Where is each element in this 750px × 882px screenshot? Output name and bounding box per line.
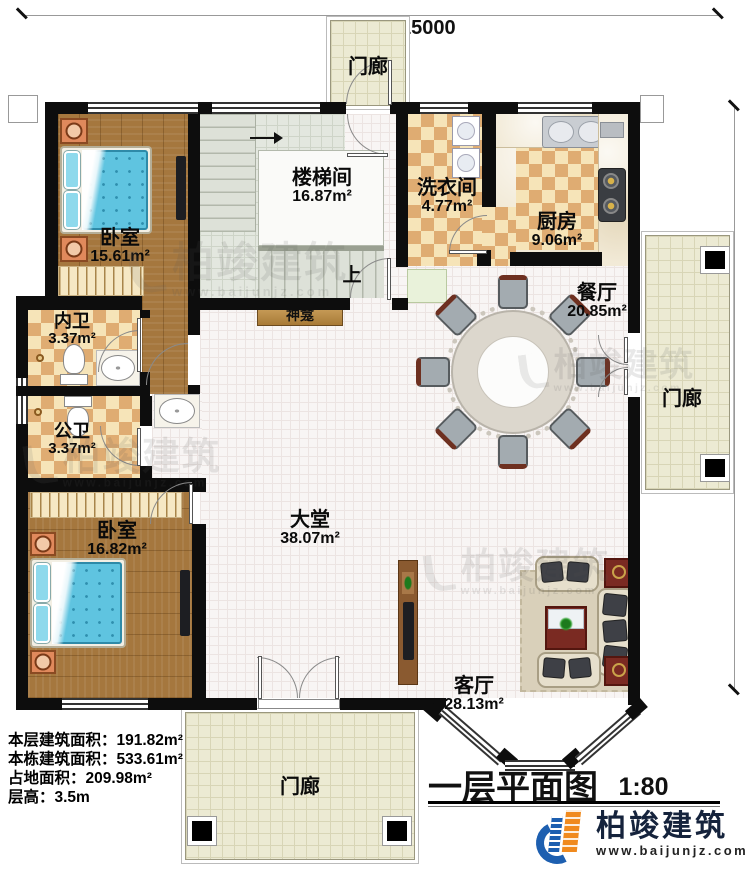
room-label-bath-inner: 内卫 3.37m² bbox=[48, 312, 96, 347]
room-area: 15.61m² bbox=[90, 249, 150, 266]
porch-label-bottom: 门廊 bbox=[280, 770, 320, 799]
wall bbox=[390, 102, 420, 114]
wall bbox=[200, 298, 350, 310]
wall bbox=[16, 296, 142, 310]
door-leaf bbox=[624, 369, 628, 395]
room-area: 3.37m² bbox=[48, 441, 96, 457]
bed-sheet bbox=[82, 150, 122, 230]
room-name: 餐厅 bbox=[567, 283, 627, 304]
dimension-line-right bbox=[734, 108, 735, 692]
toilet-bowl bbox=[63, 344, 85, 374]
dimension-tick bbox=[712, 7, 724, 19]
wall bbox=[188, 114, 200, 310]
bed-pillow bbox=[34, 604, 50, 643]
wall bbox=[192, 524, 206, 698]
door-leaf bbox=[189, 484, 193, 524]
wall bbox=[188, 296, 200, 335]
stairs-upper-flight bbox=[200, 114, 256, 232]
info-line: 占地面积：209.98m² bbox=[8, 769, 183, 788]
nightstand bbox=[60, 118, 88, 144]
brand-logo: 柏竣建筑 www.baijunjz.com bbox=[536, 810, 748, 868]
porch-pillar bbox=[187, 816, 217, 846]
wall bbox=[320, 102, 346, 114]
kitchen-sink-basin bbox=[548, 121, 574, 143]
info-line: 本层建筑面积：191.82m² bbox=[8, 731, 183, 750]
room-area: 9.06m² bbox=[532, 233, 583, 250]
room-label-living: 客厅 28.13m² bbox=[444, 676, 504, 714]
floor-plan: 15000 15600 bbox=[0, 0, 750, 882]
sofa-cushion bbox=[602, 593, 628, 617]
wall bbox=[510, 252, 602, 266]
nightstand bbox=[30, 650, 56, 674]
dining-cabinet bbox=[407, 269, 447, 303]
wall bbox=[16, 386, 140, 396]
toilet-tank bbox=[64, 396, 92, 407]
room-name: 楼梯间 bbox=[292, 168, 352, 189]
title-underline-thin bbox=[428, 806, 720, 807]
window bbox=[16, 378, 28, 424]
wall bbox=[140, 396, 152, 426]
door-leaf bbox=[137, 428, 141, 466]
room-label-laundry: 洗衣间 4.77m² bbox=[417, 178, 477, 216]
wall bbox=[16, 698, 62, 710]
room-name: 客厅 bbox=[444, 676, 504, 697]
sofa-cushion bbox=[540, 561, 564, 583]
dining-table-top bbox=[477, 336, 549, 408]
door-leaf bbox=[347, 153, 388, 157]
bed-pillow bbox=[64, 151, 80, 189]
dining-chair bbox=[498, 275, 528, 309]
side-table-decor bbox=[612, 565, 626, 579]
sofa-cushion bbox=[566, 561, 590, 583]
dimension-width: 15000 bbox=[400, 17, 456, 40]
towel-hook bbox=[34, 408, 42, 416]
room-area: 20.85m² bbox=[567, 304, 627, 321]
wall bbox=[628, 102, 640, 333]
wall bbox=[396, 114, 408, 267]
door-sill bbox=[258, 699, 340, 709]
side-table-decor bbox=[612, 663, 626, 677]
room-name: 卧室 bbox=[90, 228, 150, 249]
plant bbox=[558, 616, 574, 632]
washing-machine bbox=[452, 148, 480, 178]
wall bbox=[16, 424, 28, 710]
room-label-bath-public: 公卫 3.37m² bbox=[48, 422, 96, 457]
window bbox=[62, 698, 148, 710]
stairs-up-label: 上 bbox=[342, 260, 361, 287]
door-leaf bbox=[258, 656, 262, 699]
bed-pillow bbox=[64, 191, 80, 229]
sofa-cushion bbox=[602, 619, 628, 643]
tv-panel bbox=[180, 570, 190, 636]
kitchen-appliance bbox=[600, 122, 624, 138]
room-label-dining: 餐厅 20.85m² bbox=[567, 283, 627, 321]
room-name: 公卫 bbox=[48, 422, 96, 441]
towel-hook bbox=[36, 354, 44, 362]
dimension-line-top bbox=[22, 15, 718, 16]
room-label-kitchen: 厨房 9.06m² bbox=[532, 212, 583, 250]
wall bbox=[140, 466, 152, 478]
window bbox=[420, 102, 468, 114]
sofa-cushion bbox=[568, 657, 592, 679]
window-ledge bbox=[8, 95, 38, 123]
stairs-arrow-head bbox=[274, 132, 283, 144]
door-leaf bbox=[387, 258, 391, 300]
brand-logo-icon bbox=[536, 810, 588, 868]
toilet-tank bbox=[60, 374, 88, 385]
porch-label-top: 门廊 bbox=[348, 50, 388, 79]
wall bbox=[140, 310, 150, 318]
wall bbox=[198, 102, 212, 114]
dining-chair bbox=[416, 357, 450, 387]
wall bbox=[45, 102, 58, 302]
door-leaf bbox=[449, 250, 487, 254]
brand-url: www.baijunjz.com bbox=[596, 843, 748, 858]
sofa-cushion bbox=[542, 657, 566, 679]
brand-name: 柏竣建筑 bbox=[596, 810, 748, 843]
room-name: 大堂 bbox=[280, 510, 340, 531]
info-line: 本栋建筑面积：533.61m² bbox=[8, 750, 183, 769]
porch-label-right: 门廊 bbox=[662, 382, 702, 411]
window-ledge bbox=[640, 95, 664, 123]
room-label-hall: 大堂 38.07m² bbox=[280, 510, 340, 548]
door-leaf bbox=[335, 656, 339, 699]
wall bbox=[392, 298, 408, 310]
room-area: 28.13m² bbox=[444, 697, 504, 714]
room-area: 3.37m² bbox=[48, 331, 96, 347]
room-name: 卧室 bbox=[87, 521, 147, 542]
nightstand bbox=[60, 236, 88, 262]
stove-burner bbox=[603, 198, 619, 214]
washing-machine bbox=[452, 116, 480, 146]
logo-building-orange bbox=[562, 810, 581, 852]
dining-chair bbox=[498, 435, 528, 469]
room-area: 38.07m² bbox=[280, 531, 340, 548]
stove-burner bbox=[603, 173, 619, 189]
tv-cabinet-plant bbox=[402, 572, 414, 594]
dimension-tick bbox=[16, 7, 28, 19]
wall bbox=[628, 397, 640, 705]
wash-basin bbox=[159, 398, 195, 424]
wardrobe bbox=[58, 266, 144, 296]
title-scale: 1:80 bbox=[618, 773, 668, 802]
bed-pillow bbox=[34, 563, 50, 602]
room-label-bedroom1: 卧室 15.61m² bbox=[90, 228, 150, 266]
info-line: 层高：3.5m bbox=[8, 788, 183, 807]
porch-pillar bbox=[700, 246, 730, 274]
room-name: 内卫 bbox=[48, 312, 96, 331]
nightstand bbox=[30, 532, 56, 556]
bed-sheet bbox=[52, 562, 94, 644]
room-area: 16.87m² bbox=[292, 189, 352, 206]
porch-pillar bbox=[382, 816, 412, 846]
stairs-railing bbox=[258, 246, 384, 251]
wall bbox=[188, 385, 200, 394]
room-area: 16.82m² bbox=[87, 542, 147, 559]
tv-panel bbox=[176, 156, 186, 220]
wall bbox=[16, 296, 28, 378]
room-name: 厨房 bbox=[532, 212, 583, 233]
window bbox=[88, 102, 198, 114]
door-leaf bbox=[137, 318, 141, 372]
door-leaf bbox=[388, 60, 392, 105]
room-label-bedroom2: 卧室 16.82m² bbox=[87, 521, 147, 559]
stairs-direction-arrow bbox=[250, 137, 274, 139]
door-leaf bbox=[624, 337, 628, 363]
porch-pillar bbox=[700, 454, 730, 482]
room-area: 4.77m² bbox=[417, 199, 477, 216]
room-label-stairwell: 楼梯间 16.87m² bbox=[292, 168, 352, 206]
wall bbox=[468, 102, 518, 114]
window bbox=[518, 102, 592, 114]
building-info: 本层建筑面积：191.82m² 本栋建筑面积：533.61m² 占地面积：209… bbox=[8, 731, 183, 807]
wall bbox=[482, 114, 496, 207]
tv bbox=[403, 602, 414, 660]
wall bbox=[148, 698, 257, 710]
window bbox=[212, 102, 320, 114]
title-underline bbox=[428, 801, 720, 804]
room-name: 洗衣间 bbox=[417, 178, 477, 199]
